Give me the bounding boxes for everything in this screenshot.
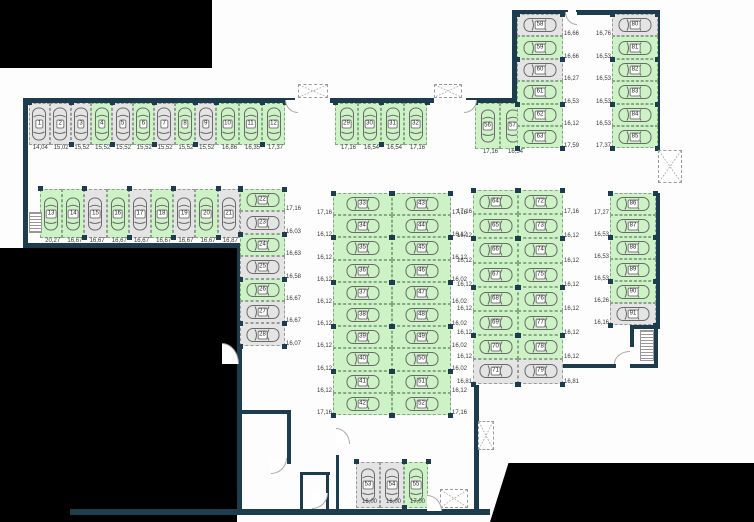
parking-stall-85[interactable]: 8517,37 — [612, 126, 658, 148]
stall-dimension-label: 15,52 — [137, 145, 152, 151]
wall-segment — [300, 472, 303, 510]
stall-dimension-label: 15,52 — [158, 145, 173, 151]
column-post — [379, 100, 384, 105]
stall-dimension-label: 16,53 — [596, 99, 611, 105]
stall-dimension-label: 17,59 — [564, 143, 579, 149]
parking-stall-64[interactable]: 6417,16 — [473, 190, 518, 214]
stall-number: 16 — [112, 209, 123, 218]
parking-stall-80[interactable]: 8016,76 — [612, 14, 658, 36]
column-post — [282, 321, 287, 326]
stall-dimension-label: 16,27 — [564, 76, 579, 82]
parking-stall-29[interactable]: 2917,16 — [335, 103, 358, 145]
wall-segment — [630, 325, 634, 347]
shaft-marker — [658, 150, 682, 183]
stall-number: 18 — [157, 209, 168, 218]
outside-area — [0, 248, 237, 522]
stall-dimension-label: 16,12 — [457, 282, 472, 288]
wall-segment — [336, 455, 339, 510]
stall-dimension-label: 17,37 — [268, 145, 283, 151]
column-post — [515, 146, 520, 151]
stall-number: 25 — [257, 263, 268, 272]
stall-dimension-label: 20,27 — [45, 238, 60, 244]
parking-stall-13[interactable]: 1320,27 — [40, 189, 62, 238]
stall-dimension-label: 16,12 — [317, 366, 332, 372]
column-post — [448, 191, 453, 196]
stall-dimension-label: 16,66 — [564, 31, 579, 37]
stall-number: 91 — [628, 310, 639, 319]
stall-number: 27 — [257, 308, 268, 317]
column-post — [238, 321, 243, 326]
shaft-x-icon — [441, 490, 467, 507]
parking-stall-62[interactable]: 6216,12 — [517, 104, 563, 126]
stall-number: 7 — [161, 120, 168, 129]
parking-stall-86[interactable]: 8617,27 — [610, 193, 656, 215]
column-post — [379, 142, 384, 147]
stall-dimension-label: 16,67 — [201, 238, 216, 244]
parking-stall-65[interactable]: 6516,12 — [473, 214, 518, 238]
parking-stall-67[interactable]: 6716,12 — [473, 263, 518, 287]
stall-dimension-label: 16,03 — [286, 229, 301, 235]
stall-dimension-label: 16,53 — [564, 99, 579, 105]
column-post — [560, 333, 565, 338]
column-post — [354, 459, 359, 464]
parking-stall-83[interactable]: 8316,53 — [612, 81, 658, 103]
column-post — [331, 413, 336, 418]
stall-dimension-label: 16,54 — [364, 145, 379, 151]
column-post — [193, 142, 198, 147]
column-post — [331, 280, 336, 285]
column-post — [171, 235, 176, 240]
stall-number: 62 — [535, 110, 546, 119]
shaft-x-icon — [299, 85, 327, 97]
stall-number: 28 — [257, 330, 268, 339]
parking-stall-74[interactable]: 7416,12 — [518, 238, 563, 262]
column-post — [390, 324, 395, 329]
parking-stall-47[interactable]: 4716,02 — [392, 282, 451, 304]
column-post — [282, 232, 287, 237]
parking-stall-9[interactable]: 915,52 — [195, 103, 216, 145]
parking-stall-84[interactable]: 8416,53 — [612, 104, 658, 126]
stall-number: 87 — [628, 222, 639, 231]
column-post — [216, 186, 221, 191]
column-post — [560, 57, 565, 62]
column-post — [515, 57, 520, 62]
parking-stall-25[interactable]: 2516,58 — [240, 256, 285, 278]
stall-number: 60 — [535, 65, 546, 74]
stall-dimension-label: 16,12 — [564, 233, 579, 239]
stall-number: 64 — [490, 198, 501, 207]
parking-stall-14[interactable]: 1416,67 — [62, 189, 84, 238]
parking-stall-3[interactable]: 315,52 — [71, 103, 92, 145]
wall-segment — [560, 364, 616, 368]
stall-dimension-label: 16,12 — [317, 277, 332, 283]
stall-number: 52 — [416, 399, 427, 408]
stall-number: 13 — [46, 209, 57, 218]
stall-dimension-label: 16,12 — [457, 354, 472, 360]
stall-number: 44 — [416, 222, 427, 231]
stall-number: 5 — [119, 120, 126, 129]
parking-stall-19[interactable]: 1916,67 — [173, 189, 195, 238]
stall-dimension-label: 16,63 — [286, 251, 301, 257]
column-post — [516, 285, 521, 290]
parking-stall-36[interactable]: 3616,12 — [333, 260, 392, 282]
column-post — [426, 459, 431, 464]
stall-number: 8 — [181, 120, 188, 129]
column-post — [608, 191, 613, 196]
column-post — [653, 279, 658, 284]
parking-stall-87[interactable]: 8716,53 — [610, 215, 656, 237]
stall-dimension-label: 16,53 — [594, 276, 609, 282]
stall-number: 70 — [490, 343, 501, 352]
parking-stall-91[interactable]: 9116,16 — [610, 303, 656, 325]
column-post — [610, 12, 615, 17]
parking-stall-38[interactable]: 3816,12 — [333, 304, 392, 326]
parking-stall-81[interactable]: 8116,53 — [612, 36, 658, 58]
column-post — [390, 413, 395, 418]
stall-number: 76 — [535, 294, 546, 303]
stall-number: 32 — [410, 120, 421, 129]
stall-dimension-label: 16,53 — [596, 76, 611, 82]
parking-floor-plan: 114,04215,02315,52415,52515,52615,52715,… — [0, 0, 754, 522]
parking-stall-40[interactable]: 4016,12 — [333, 348, 392, 370]
door-swing-arc — [565, 12, 577, 25]
parking-stall-58[interactable]: 5816,66 — [517, 14, 563, 36]
stall-number: 36 — [357, 266, 368, 275]
stall-number: 29 — [341, 120, 352, 129]
stall-dimension-label: 17,16 — [483, 149, 498, 155]
stall-number: 45 — [416, 244, 427, 253]
stall-number: 58 — [535, 21, 546, 30]
parking-stall-66[interactable]: 6616,12 — [473, 238, 518, 262]
parking-stall-82[interactable]: 8216,53 — [612, 59, 658, 81]
parking-stall-28[interactable]: 2816,07 — [240, 323, 285, 345]
stall-dimension-label: 16,02 — [452, 366, 467, 372]
wall-segment — [654, 325, 658, 368]
column-post — [69, 142, 74, 147]
shaft-x-icon — [659, 151, 681, 182]
parking-stall-16[interactable]: 1616,67 — [107, 189, 129, 238]
column-post — [471, 382, 476, 387]
stall-dimension-label: 16,67 — [286, 318, 301, 324]
stall-number: 50 — [416, 355, 427, 364]
stall-number: 31 — [387, 120, 398, 129]
parking-stall-45[interactable]: 4516,12 — [392, 237, 451, 259]
parking-stall-88[interactable]: 8816,53 — [610, 237, 656, 259]
stall-number: 54 — [387, 481, 398, 490]
stall-number: 17 — [135, 209, 146, 218]
stall-number: 37 — [357, 288, 368, 297]
column-post — [608, 235, 613, 240]
stall-dimension-label: 16,67 — [134, 238, 149, 244]
stall-dimension-label: 17,16 — [317, 210, 332, 216]
parking-stall-17[interactable]: 1716,67 — [129, 189, 151, 238]
stall-dimension-label: 16,35 — [245, 145, 260, 151]
parking-stall-79[interactable]: 7916,81 — [518, 359, 563, 383]
column-post — [333, 100, 338, 105]
stall-number: 33 — [357, 200, 368, 209]
stall-number: 67 — [490, 270, 501, 279]
column-post — [331, 191, 336, 196]
column-post — [515, 12, 520, 17]
stall-dimension-label: 16,12 — [564, 258, 579, 264]
column-post — [653, 235, 658, 240]
stall-dimension-label: 16,12 — [457, 258, 472, 264]
stall-number: 14 — [68, 209, 79, 218]
column-post — [282, 187, 287, 192]
stall-number: 19 — [179, 209, 190, 218]
stall-number: 3 — [77, 120, 84, 129]
parking-stall-32[interactable]: 3217,16 — [404, 103, 427, 145]
parking-stall-41[interactable]: 4116,12 — [333, 371, 392, 393]
outside-area — [490, 463, 754, 522]
wall-segment — [326, 472, 329, 510]
shaft-marker — [440, 489, 468, 508]
column-post — [390, 191, 395, 196]
stall-dimension-label: 16,53 — [594, 254, 609, 260]
stall-dimension-label: 16,02 — [452, 321, 467, 327]
parking-stall-1[interactable]: 114,04 — [29, 103, 50, 145]
stall-dimension-label: 15,52 — [178, 145, 193, 151]
column-post — [608, 279, 613, 284]
stall-number: 11 — [245, 120, 255, 129]
column-post — [390, 369, 395, 374]
parking-stall-22[interactable]: 2217,16 — [240, 189, 285, 211]
door-swing-arc — [336, 428, 350, 444]
parking-stall-60[interactable]: 6016,27 — [517, 59, 563, 81]
column-post — [260, 142, 265, 147]
parking-stall-55[interactable]: 5517,00 — [404, 462, 428, 508]
stall-number: 46 — [416, 266, 427, 275]
stall-dimension-label: 16,81 — [457, 379, 472, 385]
column-post — [471, 285, 476, 290]
parking-stall-50[interactable]: 5016,02 — [392, 348, 451, 370]
parking-stall-8[interactable]: 815,52 — [175, 103, 196, 145]
column-post — [448, 280, 453, 285]
outside-area — [0, 0, 212, 68]
column-post — [127, 235, 132, 240]
stall-dimension-label: 17,00 — [410, 499, 425, 505]
stall-dimension-label: 16,67 — [156, 238, 171, 244]
parking-stall-42[interactable]: 4217,16 — [333, 393, 392, 415]
column-post — [331, 235, 336, 240]
stall-number: 22 — [257, 196, 268, 205]
parking-stall-51[interactable]: 5116,12 — [392, 371, 451, 393]
stall-dimension-label: 16,12 — [317, 343, 332, 349]
stall-number: 24 — [257, 240, 268, 249]
parking-stall-18[interactable]: 1816,67 — [151, 189, 173, 238]
stall-dimension-label: 17,37 — [596, 143, 611, 149]
column-post — [127, 186, 132, 191]
parking-stall-44[interactable]: 4416,12 — [392, 215, 451, 237]
stall-number: 26 — [257, 285, 268, 294]
parking-stall-77[interactable]: 7716,12 — [518, 311, 563, 335]
stall-number: 43 — [416, 200, 427, 209]
column-post — [193, 100, 198, 105]
column-post — [214, 100, 219, 105]
column-post — [390, 280, 395, 285]
stall-dimension-label: 16,76 — [596, 31, 611, 37]
parking-stall-12[interactable]: 1217,37 — [262, 103, 285, 145]
parking-stall-68[interactable]: 6816,12 — [473, 287, 518, 311]
door-swing-arc — [285, 100, 298, 113]
column-post — [471, 333, 476, 338]
column-post — [282, 277, 287, 282]
parking-stall-34[interactable]: 3416,12 — [333, 215, 392, 237]
stall-dimension-label: 16,12 — [317, 299, 332, 305]
stall-dimension-label: 17,16 — [457, 209, 472, 215]
column-post — [516, 382, 521, 387]
parking-stall-71[interactable]: 7116,81 — [473, 359, 518, 383]
stall-dimension-label: 16,54 — [387, 145, 402, 151]
parking-stall-5[interactable]: 515,52 — [112, 103, 133, 145]
door-swing-arc — [614, 351, 630, 364]
parking-stall-6[interactable]: 615,52 — [133, 103, 154, 145]
parking-stall-75[interactable]: 7516,12 — [518, 263, 563, 287]
stall-number: 78 — [535, 343, 546, 352]
column-post — [82, 186, 87, 191]
wall-segment — [238, 410, 291, 414]
parking-stall-11[interactable]: 1116,35 — [239, 103, 262, 145]
column-post — [653, 323, 658, 328]
parking-stall-61[interactable]: 6116,53 — [517, 81, 563, 103]
stall-number: 55 — [411, 481, 422, 490]
parking-stall-4[interactable]: 415,52 — [91, 103, 112, 145]
stall-dimension-label: 15,52 — [199, 145, 214, 151]
parking-stall-26[interactable]: 2616,67 — [240, 279, 285, 301]
parking-stall-20[interactable]: 2016,67 — [195, 189, 217, 238]
stall-number: 77 — [535, 319, 546, 328]
column-post — [471, 236, 476, 241]
parking-stall-39[interactable]: 3916,12 — [333, 326, 392, 348]
stairs-icon — [29, 212, 42, 233]
stall-dimension-label: 16,67 — [112, 238, 127, 244]
column-post — [238, 344, 243, 349]
parking-stall-49[interactable]: 4916,02 — [392, 326, 451, 348]
stall-number: 6 — [140, 120, 147, 129]
stall-dimension-label: 16,00 — [386, 499, 401, 505]
stall-number: 34 — [357, 222, 368, 231]
column-post — [260, 100, 265, 105]
stall-number: 2 — [57, 120, 64, 129]
parking-stall-33[interactable]: 3317,16 — [333, 193, 392, 215]
stall-dimension-label: 16,67 — [90, 238, 105, 244]
stall-dimension-label: 16,02 — [452, 299, 467, 305]
column-post — [610, 146, 615, 151]
parking-stall-90[interactable]: 9016,26 — [610, 281, 656, 303]
stall-number: 10 — [222, 120, 233, 129]
parking-stall-30[interactable]: 3016,54 — [358, 103, 381, 145]
stall-dimension-label: 16,12 — [564, 354, 579, 360]
stall-number: 40 — [357, 355, 368, 364]
column-post — [216, 235, 221, 240]
column-post — [448, 413, 453, 418]
parking-stall-70[interactable]: 7016,12 — [473, 335, 518, 359]
stall-dimension-label: 15,02 — [54, 145, 69, 151]
column-post — [82, 235, 87, 240]
wall-segment — [287, 410, 291, 464]
stall-dimension-label: 17,27 — [594, 210, 609, 216]
stall-dimension-label: 16,12 — [452, 388, 467, 394]
stall-dimension-label: 16,12 — [564, 282, 579, 288]
column-post — [610, 57, 615, 62]
parking-stall-73[interactable]: 7316,12 — [518, 214, 563, 238]
parking-stall-10[interactable]: 1016,86 — [216, 103, 239, 145]
column-post — [655, 102, 660, 107]
parking-stall-52[interactable]: 5217,16 — [392, 393, 451, 415]
column-post — [390, 235, 395, 240]
parking-stall-78[interactable]: 7816,12 — [518, 335, 563, 359]
parking-stall-15[interactable]: 1516,67 — [84, 189, 106, 238]
shaft-marker — [434, 84, 462, 98]
column-post — [653, 191, 658, 196]
column-post — [152, 142, 157, 147]
parking-stall-37[interactable]: 3716,12 — [333, 282, 392, 304]
parking-stall-59[interactable]: 5916,66 — [517, 36, 563, 58]
parking-stall-54[interactable]: 5416,00 — [380, 462, 404, 508]
column-post — [448, 369, 453, 374]
stall-number: 85 — [630, 133, 641, 142]
parking-stall-89[interactable]: 8916,53 — [610, 259, 656, 281]
parking-stall-2[interactable]: 215,02 — [50, 103, 71, 145]
stall-dimension-label: 16,12 — [317, 321, 332, 327]
column-post — [610, 102, 615, 107]
parking-stall-46[interactable]: 4616,02 — [392, 260, 451, 282]
stall-dimension-label: 16,00 — [362, 499, 377, 505]
parking-stall-24[interactable]: 2416,63 — [240, 234, 285, 256]
stall-dimension-label: 16,16 — [594, 320, 609, 326]
stall-number: 82 — [630, 65, 641, 74]
stall-dimension-label: 16,53 — [596, 121, 611, 127]
stall-number: 86 — [628, 200, 639, 209]
column-post — [238, 277, 243, 282]
parking-stall-7[interactable]: 715,52 — [154, 103, 175, 145]
column-post — [282, 344, 287, 349]
stall-dimension-label: 16,26 — [594, 298, 609, 304]
column-post — [152, 100, 157, 105]
parking-stall-72[interactable]: 7217,16 — [518, 190, 563, 214]
parking-stall-23[interactable]: 2316,03 — [240, 211, 285, 233]
stall-number: 63 — [535, 133, 546, 142]
column-post — [171, 186, 176, 191]
stall-number: 49 — [416, 333, 427, 342]
stall-dimension-label: 16,86 — [222, 145, 237, 151]
stall-number: 53 — [363, 481, 374, 490]
column-post — [402, 505, 407, 510]
shaft-marker — [478, 421, 494, 450]
parking-stall-43[interactable]: 4317,16 — [392, 193, 451, 215]
stall-dimension-label: 16,12 — [317, 388, 332, 394]
column-post — [560, 236, 565, 241]
parking-stall-27[interactable]: 2716,67 — [240, 301, 285, 323]
parking-stall-56[interactable]: 5617,16 — [475, 103, 500, 149]
parking-stall-63[interactable]: 6317,59 — [517, 126, 563, 148]
stall-number: 72 — [535, 198, 546, 207]
parking-stall-53[interactable]: 5316,00 — [356, 462, 380, 508]
stall-number: 61 — [535, 88, 546, 97]
column-post — [516, 333, 521, 338]
column-post — [69, 100, 74, 105]
column-post — [331, 324, 336, 329]
parking-stall-76[interactable]: 7616,12 — [518, 287, 563, 311]
parking-stall-69[interactable]: 6916,12 — [473, 311, 518, 335]
stall-dimension-label: 15,52 — [74, 145, 89, 151]
stall-dimension-label: 17,16 — [341, 145, 356, 151]
parking-stall-48[interactable]: 4816,02 — [392, 304, 451, 326]
parking-stall-31[interactable]: 3116,54 — [381, 103, 404, 145]
parking-stall-21[interactable]: 2116,87 — [218, 189, 240, 238]
stall-dimension-label: 16,12 — [457, 233, 472, 239]
parking-stall-35[interactable]: 3516,12 — [333, 237, 392, 259]
